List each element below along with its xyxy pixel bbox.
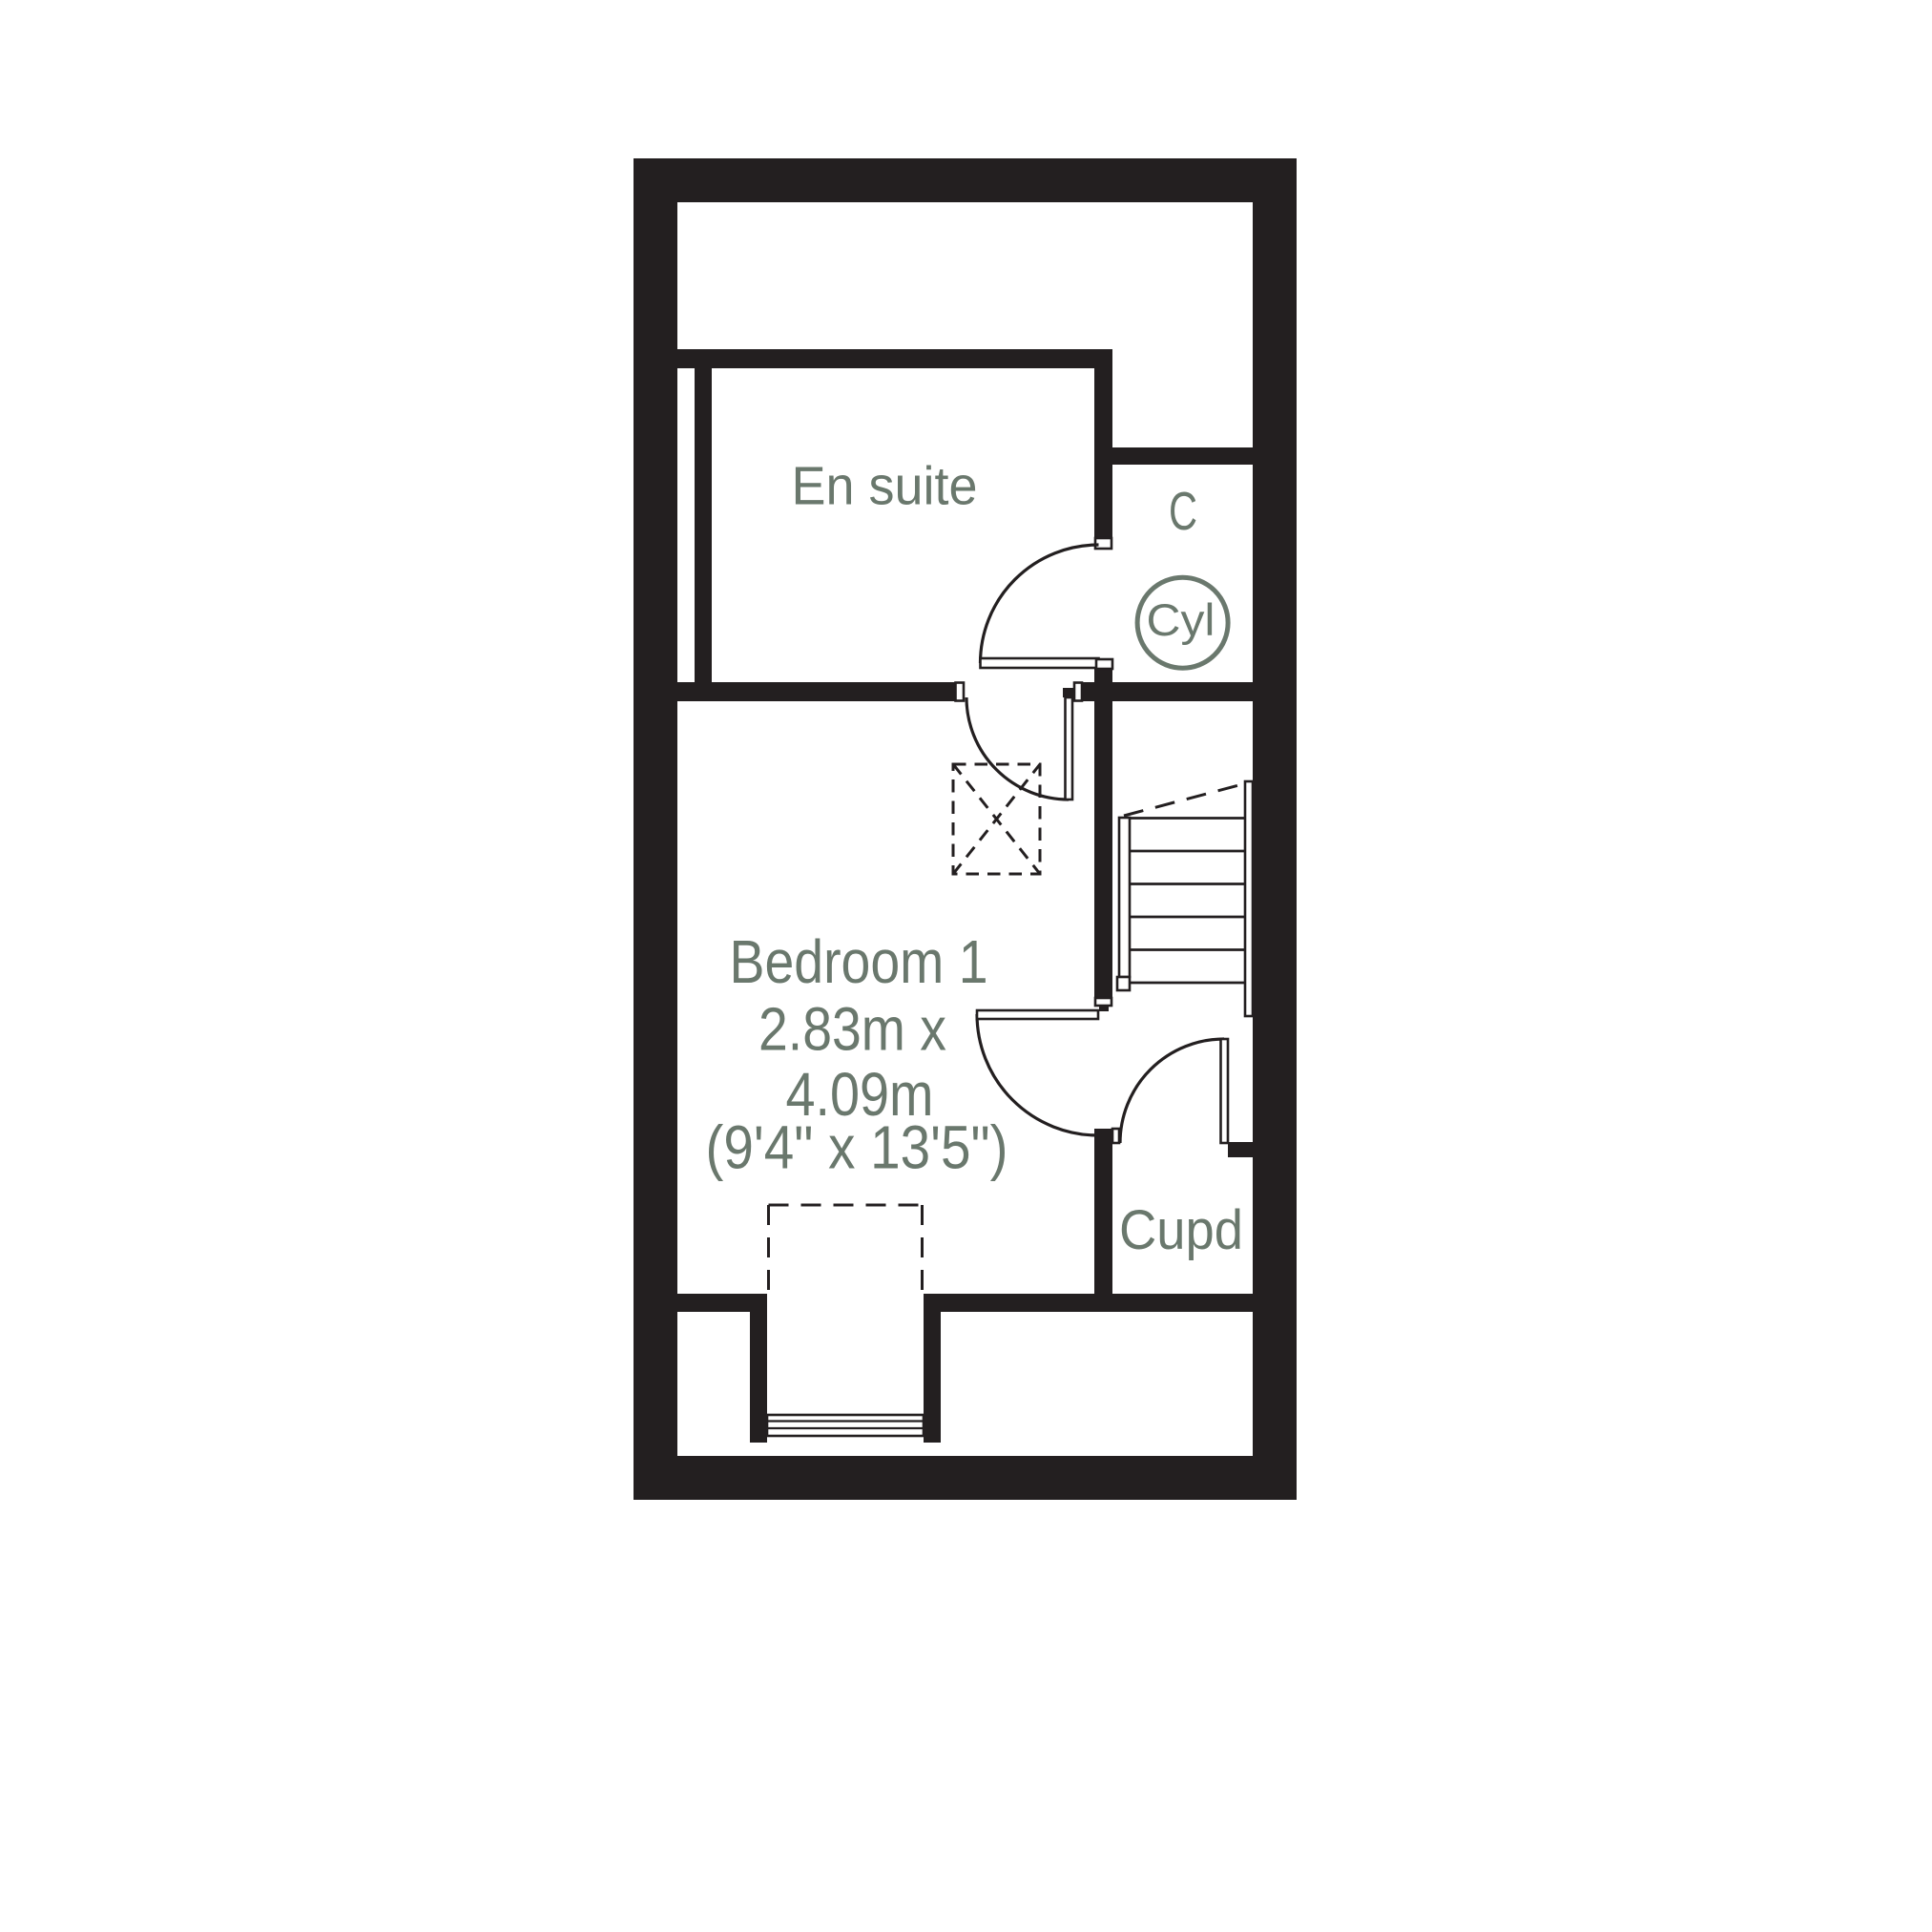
- svg-text:Cupd: Cupd: [1119, 1199, 1243, 1261]
- svg-text:Bedroom 1: Bedroom 1: [730, 927, 988, 996]
- svg-text:(9'4" x 13'5"): (9'4" x 13'5"): [706, 1113, 1008, 1182]
- svg-text:En suite: En suite: [792, 456, 978, 516]
- svg-text:2.83m x: 2.83m x: [758, 995, 946, 1064]
- svg-text:C: C: [1169, 481, 1197, 541]
- svg-text:Cyl: Cyl: [1147, 595, 1215, 646]
